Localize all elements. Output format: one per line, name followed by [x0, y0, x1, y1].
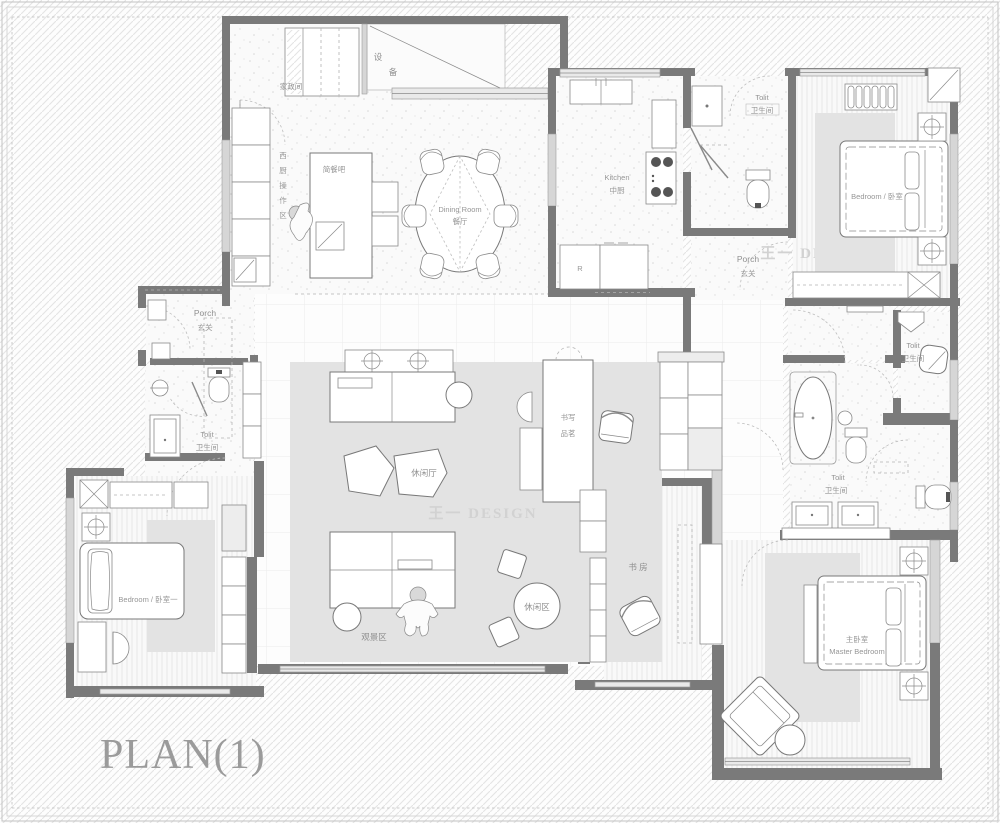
tv-cabinet	[782, 528, 890, 539]
viewing-label: 观景区	[361, 632, 387, 642]
wardrobe-west	[222, 505, 246, 673]
nightstand-lamp	[918, 113, 946, 141]
master-label-zh: 主卧室	[846, 634, 869, 644]
shower-control	[838, 411, 852, 425]
stove	[646, 152, 676, 204]
cabinet-column-toilet	[243, 362, 261, 458]
kitchen-label-en: Kitchen	[604, 173, 629, 182]
toilet-west-label-en: Tolit	[200, 430, 214, 439]
dining-label-zh: 餐厅	[453, 217, 468, 226]
toilet-east-label-zh: 卫生间	[825, 485, 848, 495]
fridge-label: R	[577, 264, 583, 273]
side-table-round	[446, 382, 472, 408]
watermark-center: 王一 DESIGN	[428, 505, 537, 522]
cabinet-row-top	[80, 480, 208, 508]
bed-west: Bedroom / 卧室一	[80, 543, 184, 619]
nightstand-lamp	[900, 672, 928, 700]
floor-plan-drawing: 设 备 家政间 西 厨 操 作 区	[0, 0, 1000, 823]
study-label: 书 房	[628, 562, 647, 572]
toilet-wand	[845, 428, 867, 463]
hall-cabinets	[658, 352, 724, 470]
bed-north: Bedroom / 卧室	[840, 141, 948, 237]
bed-master: 主卧室 Master Bedroom	[818, 576, 926, 670]
toilet-small-fixture	[847, 306, 883, 312]
kitchen-label-zh: 中厨	[610, 185, 625, 195]
tea-label-2: 品茗	[561, 428, 576, 438]
lounge-label: 休闲厅	[411, 468, 437, 478]
svg-text:区: 区	[279, 211, 287, 220]
toilet-east-label-en: Tolit	[831, 473, 845, 482]
pillow	[905, 152, 919, 189]
bedroom-west-label: Bedroom / 卧室一	[118, 594, 178, 604]
equipment-label-char2: 备	[389, 67, 398, 77]
porch-west-label-zh: 玄关	[198, 322, 213, 332]
svg-text:操: 操	[279, 180, 287, 190]
toilet-east-small-label-zh: 卫生间	[902, 353, 925, 363]
toilet-north-label-en: Tolit	[755, 93, 769, 102]
wardrobe-north	[793, 272, 940, 298]
console-table	[345, 350, 453, 372]
bar-stool	[372, 182, 398, 212]
nightstand-lamp	[918, 237, 946, 265]
vanity-west	[150, 415, 180, 457]
radiator	[845, 84, 897, 110]
plan-title: PLAN(1)	[100, 732, 266, 778]
tea-chair	[598, 410, 634, 444]
toilet-west-fixture	[208, 368, 230, 402]
toilet-west-label-zh: 卫生间	[196, 442, 219, 452]
bedroom-north-label: Bedroom / 卧室	[851, 191, 903, 201]
sofa-top	[330, 372, 472, 422]
pillow	[886, 588, 901, 625]
svg-text:作: 作	[279, 195, 287, 205]
toilet-north-fixture	[746, 170, 770, 208]
equipment-label-char1: 设	[374, 52, 383, 62]
master-label-en: Master Bedroom	[829, 647, 884, 656]
housekeeping-room: 家政间	[280, 28, 359, 96]
side-table-round	[775, 725, 805, 755]
pillow	[886, 629, 901, 666]
toilet-east-small-label-en: Tolit	[906, 341, 920, 350]
toilet-east-fixture	[916, 485, 951, 509]
porch-east-label-zh: 玄关	[741, 268, 756, 278]
nightstand-lamp	[82, 513, 110, 541]
bench	[520, 428, 542, 490]
ottoman-round	[333, 603, 361, 631]
toilet-north-label-zh: 卫生间	[751, 105, 774, 115]
tea-label-1: 书写	[561, 412, 576, 422]
svg-text:西: 西	[279, 151, 287, 160]
side-cabinet	[78, 622, 106, 672]
porch-west-label-en: Porch	[194, 308, 216, 318]
porch-east-label-en: Porch	[737, 254, 759, 264]
nightstand-lamp	[900, 547, 928, 575]
bed-bench	[804, 585, 817, 663]
bar-stool	[372, 216, 398, 246]
svg-text:厨: 厨	[279, 166, 287, 175]
leisure-label: 休闲区	[524, 602, 550, 612]
floor-plan-page: 设 备 家政间 西 厨 操 作 区	[0, 0, 1000, 823]
dining-label-en: Dining Room	[438, 205, 481, 214]
housekeeping-label: 家政间	[280, 81, 303, 91]
bar-label: 简餐吧	[323, 164, 346, 174]
pillow	[905, 193, 919, 230]
